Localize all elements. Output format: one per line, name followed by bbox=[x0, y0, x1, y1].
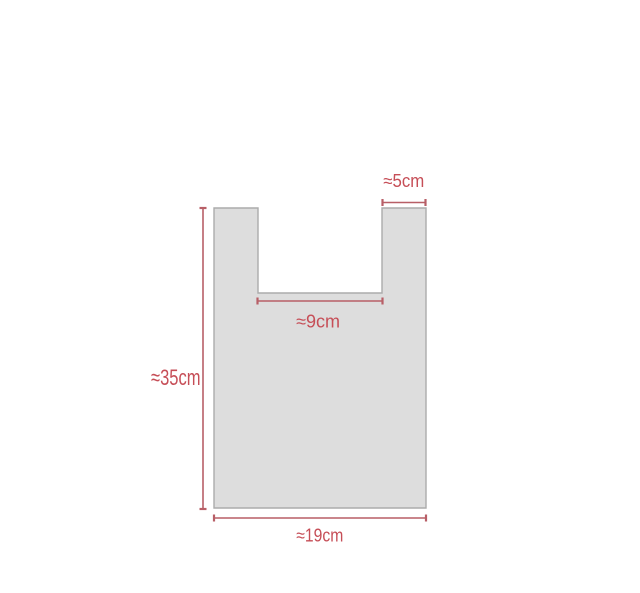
svg-text:≈35cm: ≈35cm bbox=[151, 365, 201, 390]
svg-text:≈9cm: ≈9cm bbox=[296, 312, 340, 332]
svg-text:≈5cm: ≈5cm bbox=[383, 171, 424, 191]
svg-text:≈19cm: ≈19cm bbox=[296, 526, 343, 546]
